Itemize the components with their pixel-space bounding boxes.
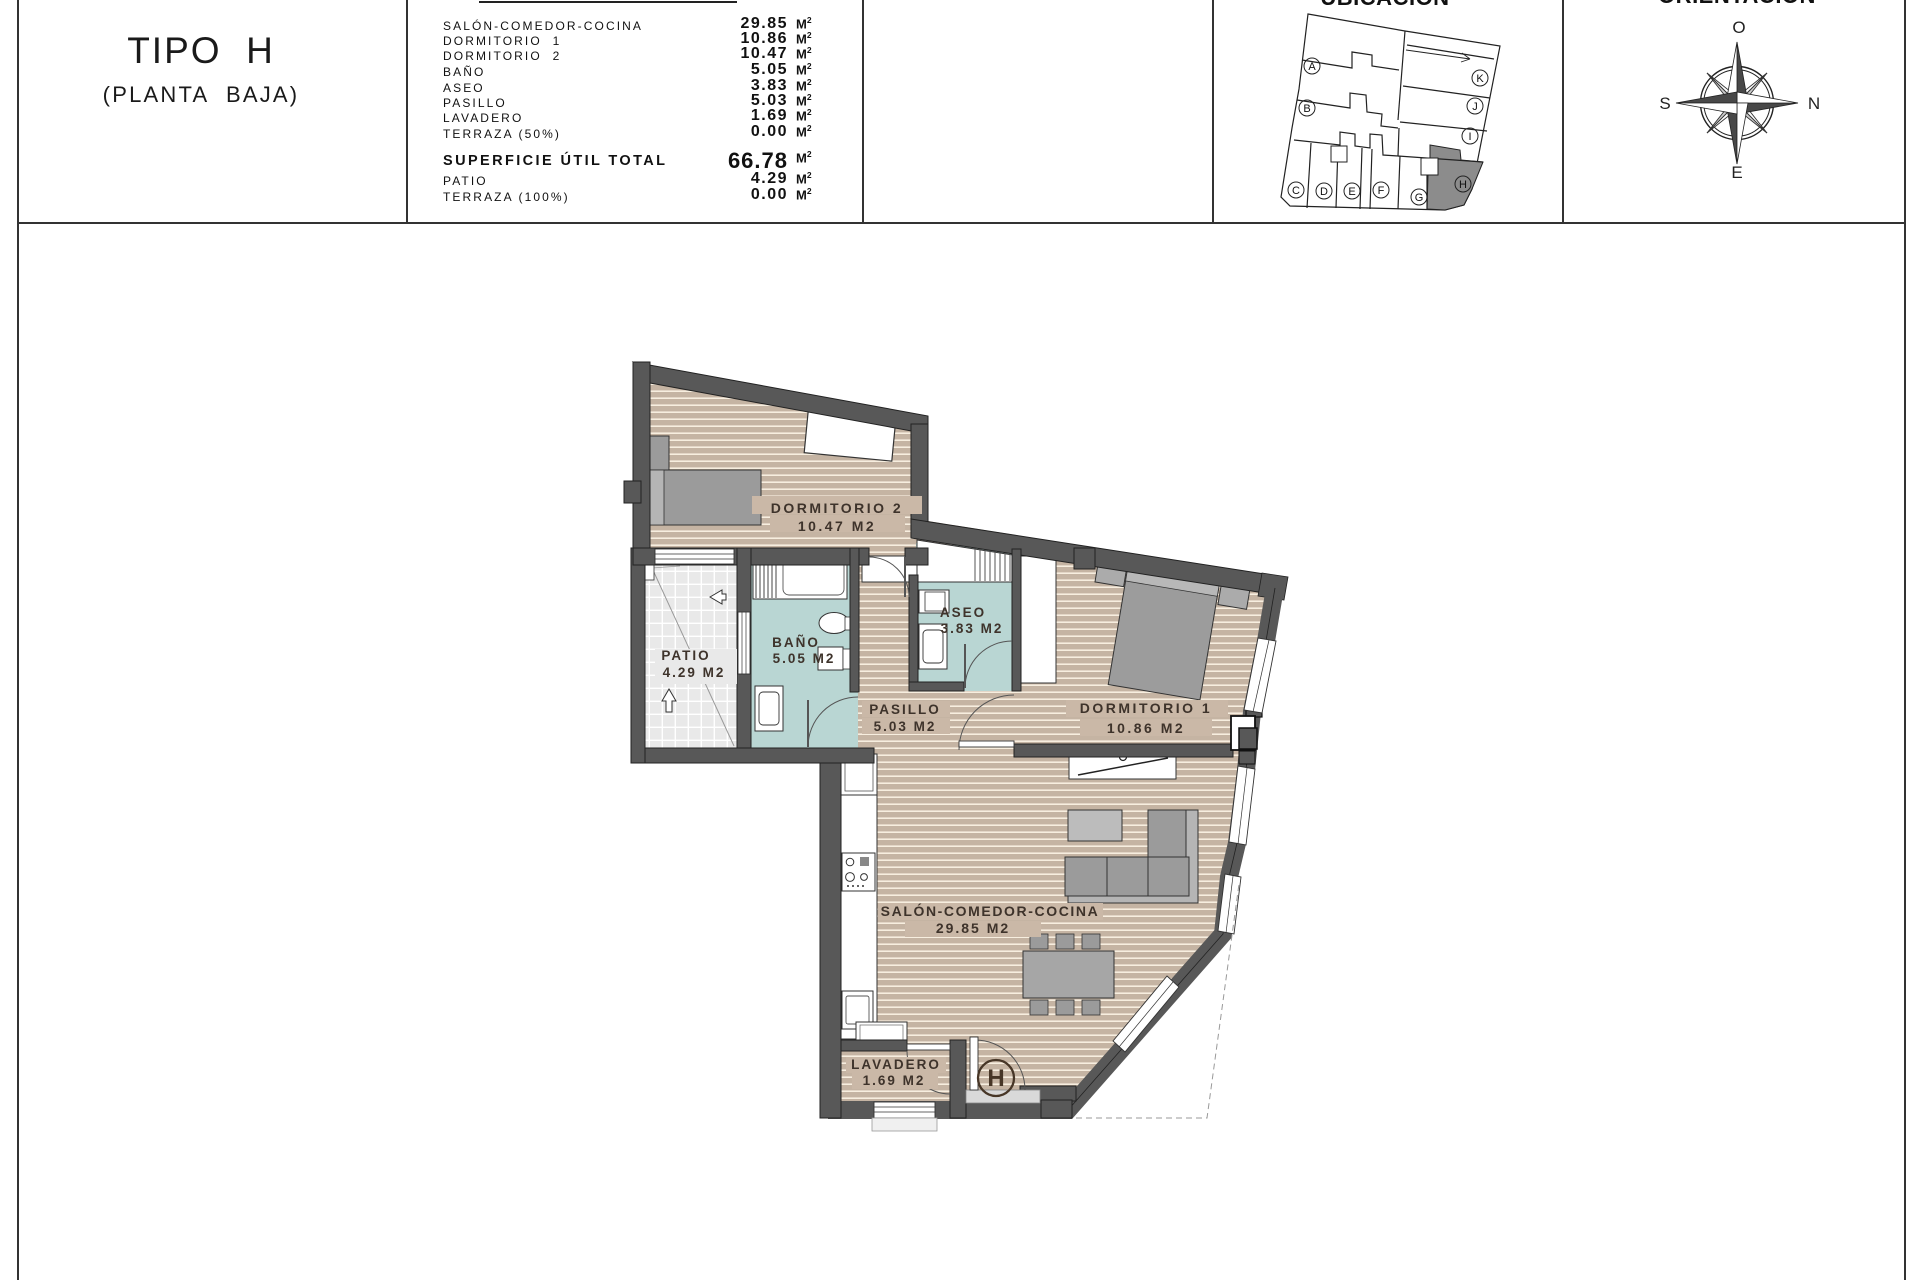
svg-text:ASEO: ASEO <box>940 605 986 620</box>
svg-text:PATIO: PATIO <box>661 648 710 663</box>
svg-text:DORMITORIO 2: DORMITORIO 2 <box>771 500 903 516</box>
svg-text:E: E <box>1348 186 1355 198</box>
svg-text:H: H <box>987 1065 1004 1092</box>
svg-text:SALÓN-COMEDOR-COCINA: SALÓN-COMEDOR-COCINA <box>881 902 1100 919</box>
svg-text:E: E <box>1731 163 1742 182</box>
svg-text:B: B <box>1303 103 1310 115</box>
svg-text:29.85 M2: 29.85 M2 <box>936 920 1010 936</box>
svg-text:G: G <box>1415 192 1424 204</box>
svg-text:D: D <box>1320 186 1328 198</box>
svg-text:10.86 M2: 10.86 M2 <box>1107 720 1185 736</box>
svg-text:F: F <box>1378 185 1385 197</box>
svg-text:H: H <box>1459 179 1467 191</box>
svg-text:S: S <box>1659 94 1670 113</box>
svg-text:I: I <box>1468 131 1471 143</box>
svg-text:1.69 M2: 1.69 M2 <box>863 1073 926 1088</box>
svg-text:5.03 M2: 5.03 M2 <box>874 719 937 734</box>
svg-text:5.05 M2: 5.05 M2 <box>773 651 836 666</box>
svg-text:3.83 M2: 3.83 M2 <box>941 621 1004 636</box>
svg-text:10.47 M2: 10.47 M2 <box>798 518 876 534</box>
svg-text:BAÑO: BAÑO <box>772 635 820 650</box>
svg-text:DORMITORIO 1: DORMITORIO 1 <box>1080 700 1212 716</box>
svg-text:K: K <box>1476 73 1484 85</box>
svg-text:O: O <box>1732 18 1745 37</box>
svg-text:LAVADERO: LAVADERO <box>851 1057 941 1072</box>
svg-text:N: N <box>1808 94 1820 113</box>
svg-text:J: J <box>1472 101 1478 113</box>
svg-text:C: C <box>1292 185 1300 197</box>
svg-text:PASILLO: PASILLO <box>869 702 941 717</box>
svg-text:4.29 M2: 4.29 M2 <box>663 665 726 680</box>
svg-text:A: A <box>1308 61 1316 73</box>
